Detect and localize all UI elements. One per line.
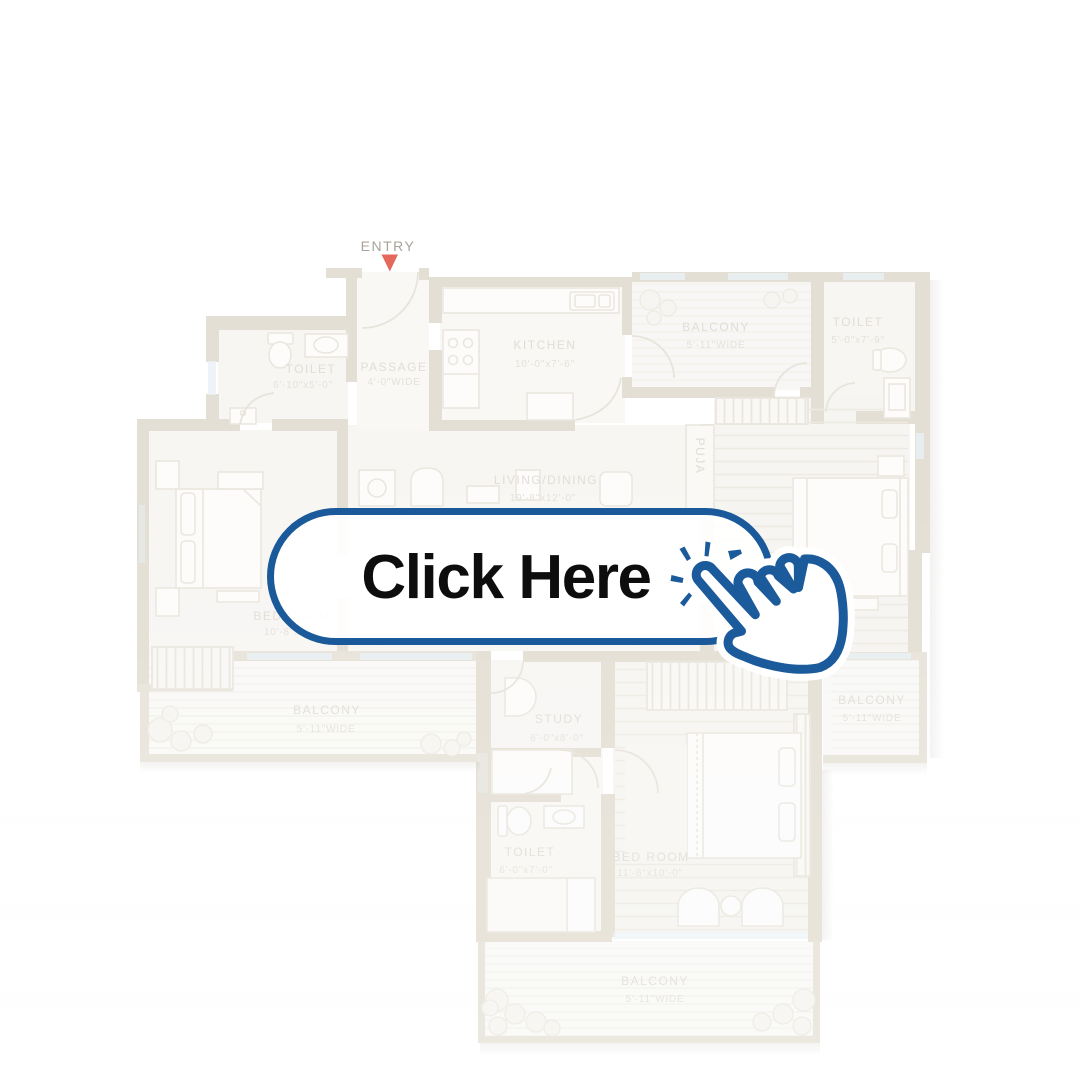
svg-text:Click Here: Click Here [361, 543, 650, 612]
svg-text:ENTRY: ENTRY [361, 238, 416, 254]
